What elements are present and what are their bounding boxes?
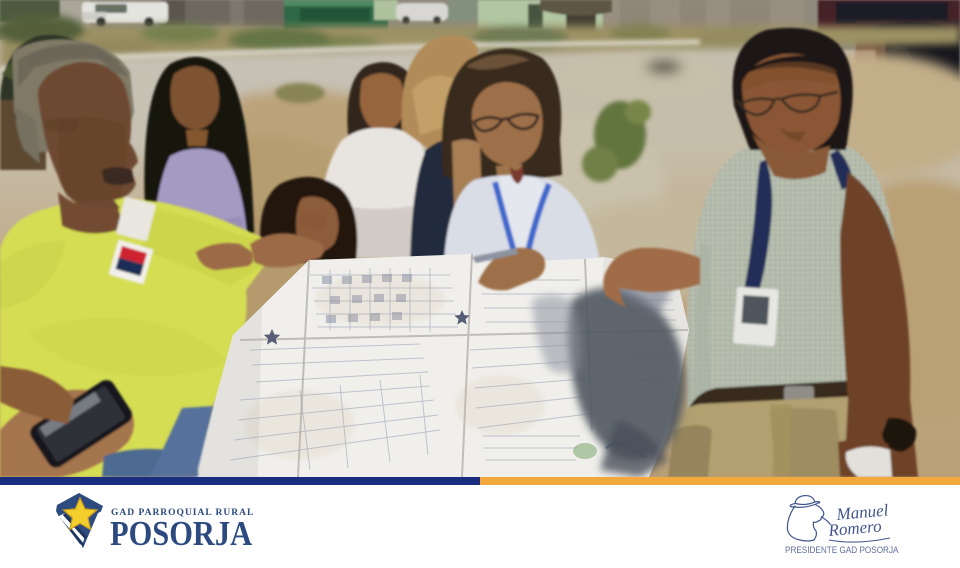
svg-text:Romero: Romero [827, 516, 883, 540]
